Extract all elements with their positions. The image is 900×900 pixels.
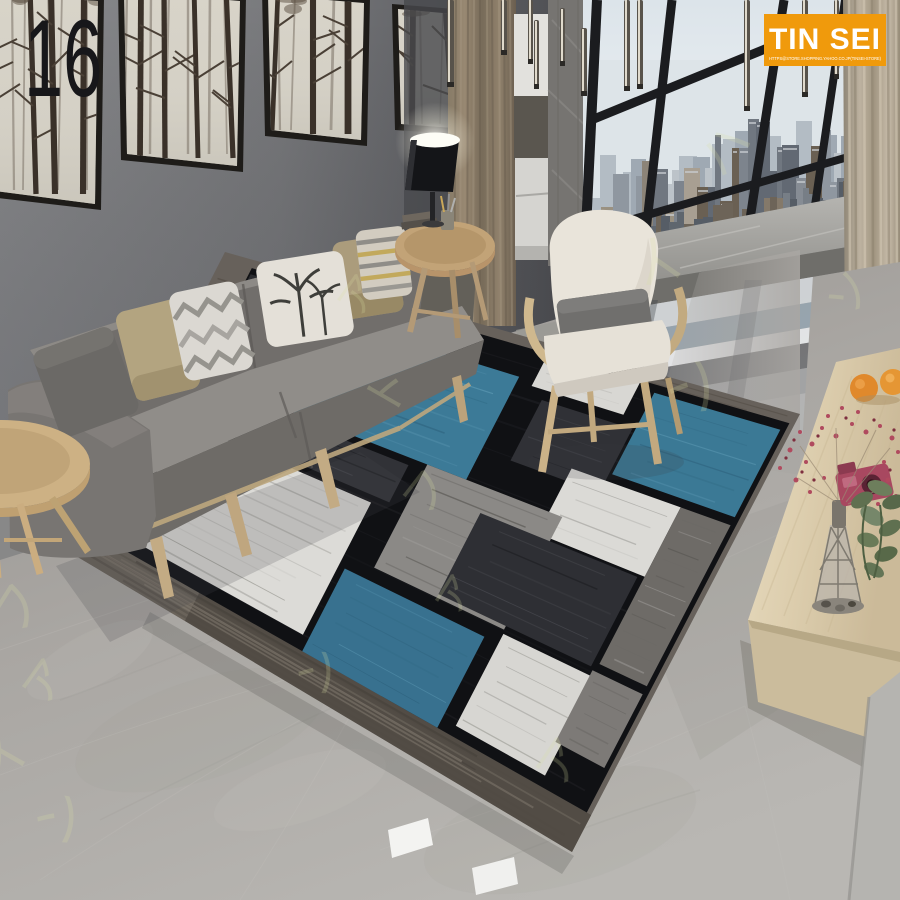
svg-text:16: 16 bbox=[24, 0, 102, 120]
svg-text:TIN SEI: TIN SEI bbox=[769, 23, 881, 56]
svg-text:HTTPS@STORE.SHOPPING.YAHOO.CO.: HTTPS@STORE.SHOPPING.YAHOO.CO.JP(TINSEI-… bbox=[769, 56, 881, 61]
